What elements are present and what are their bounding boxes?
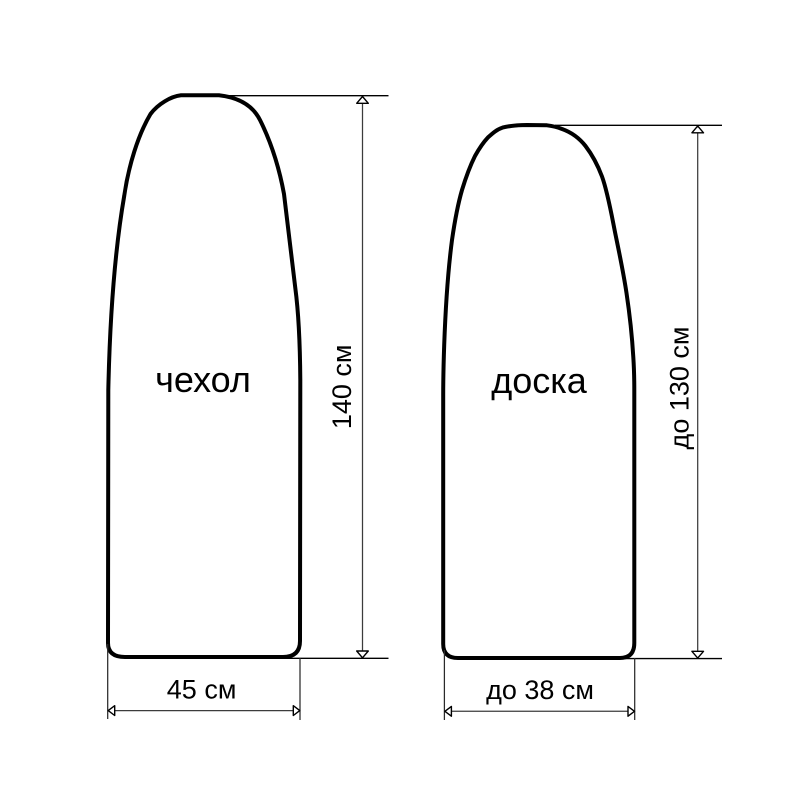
svg-text:доска: доска [491,360,588,401]
svg-text:140 см: 140 см [327,344,357,429]
svg-text:до 130 см: до 130 см [665,327,695,450]
svg-text:чехол: чехол [155,359,251,400]
svg-text:до 38 см: до 38 см [486,675,594,705]
svg-text:45 см: 45 см [167,675,237,705]
